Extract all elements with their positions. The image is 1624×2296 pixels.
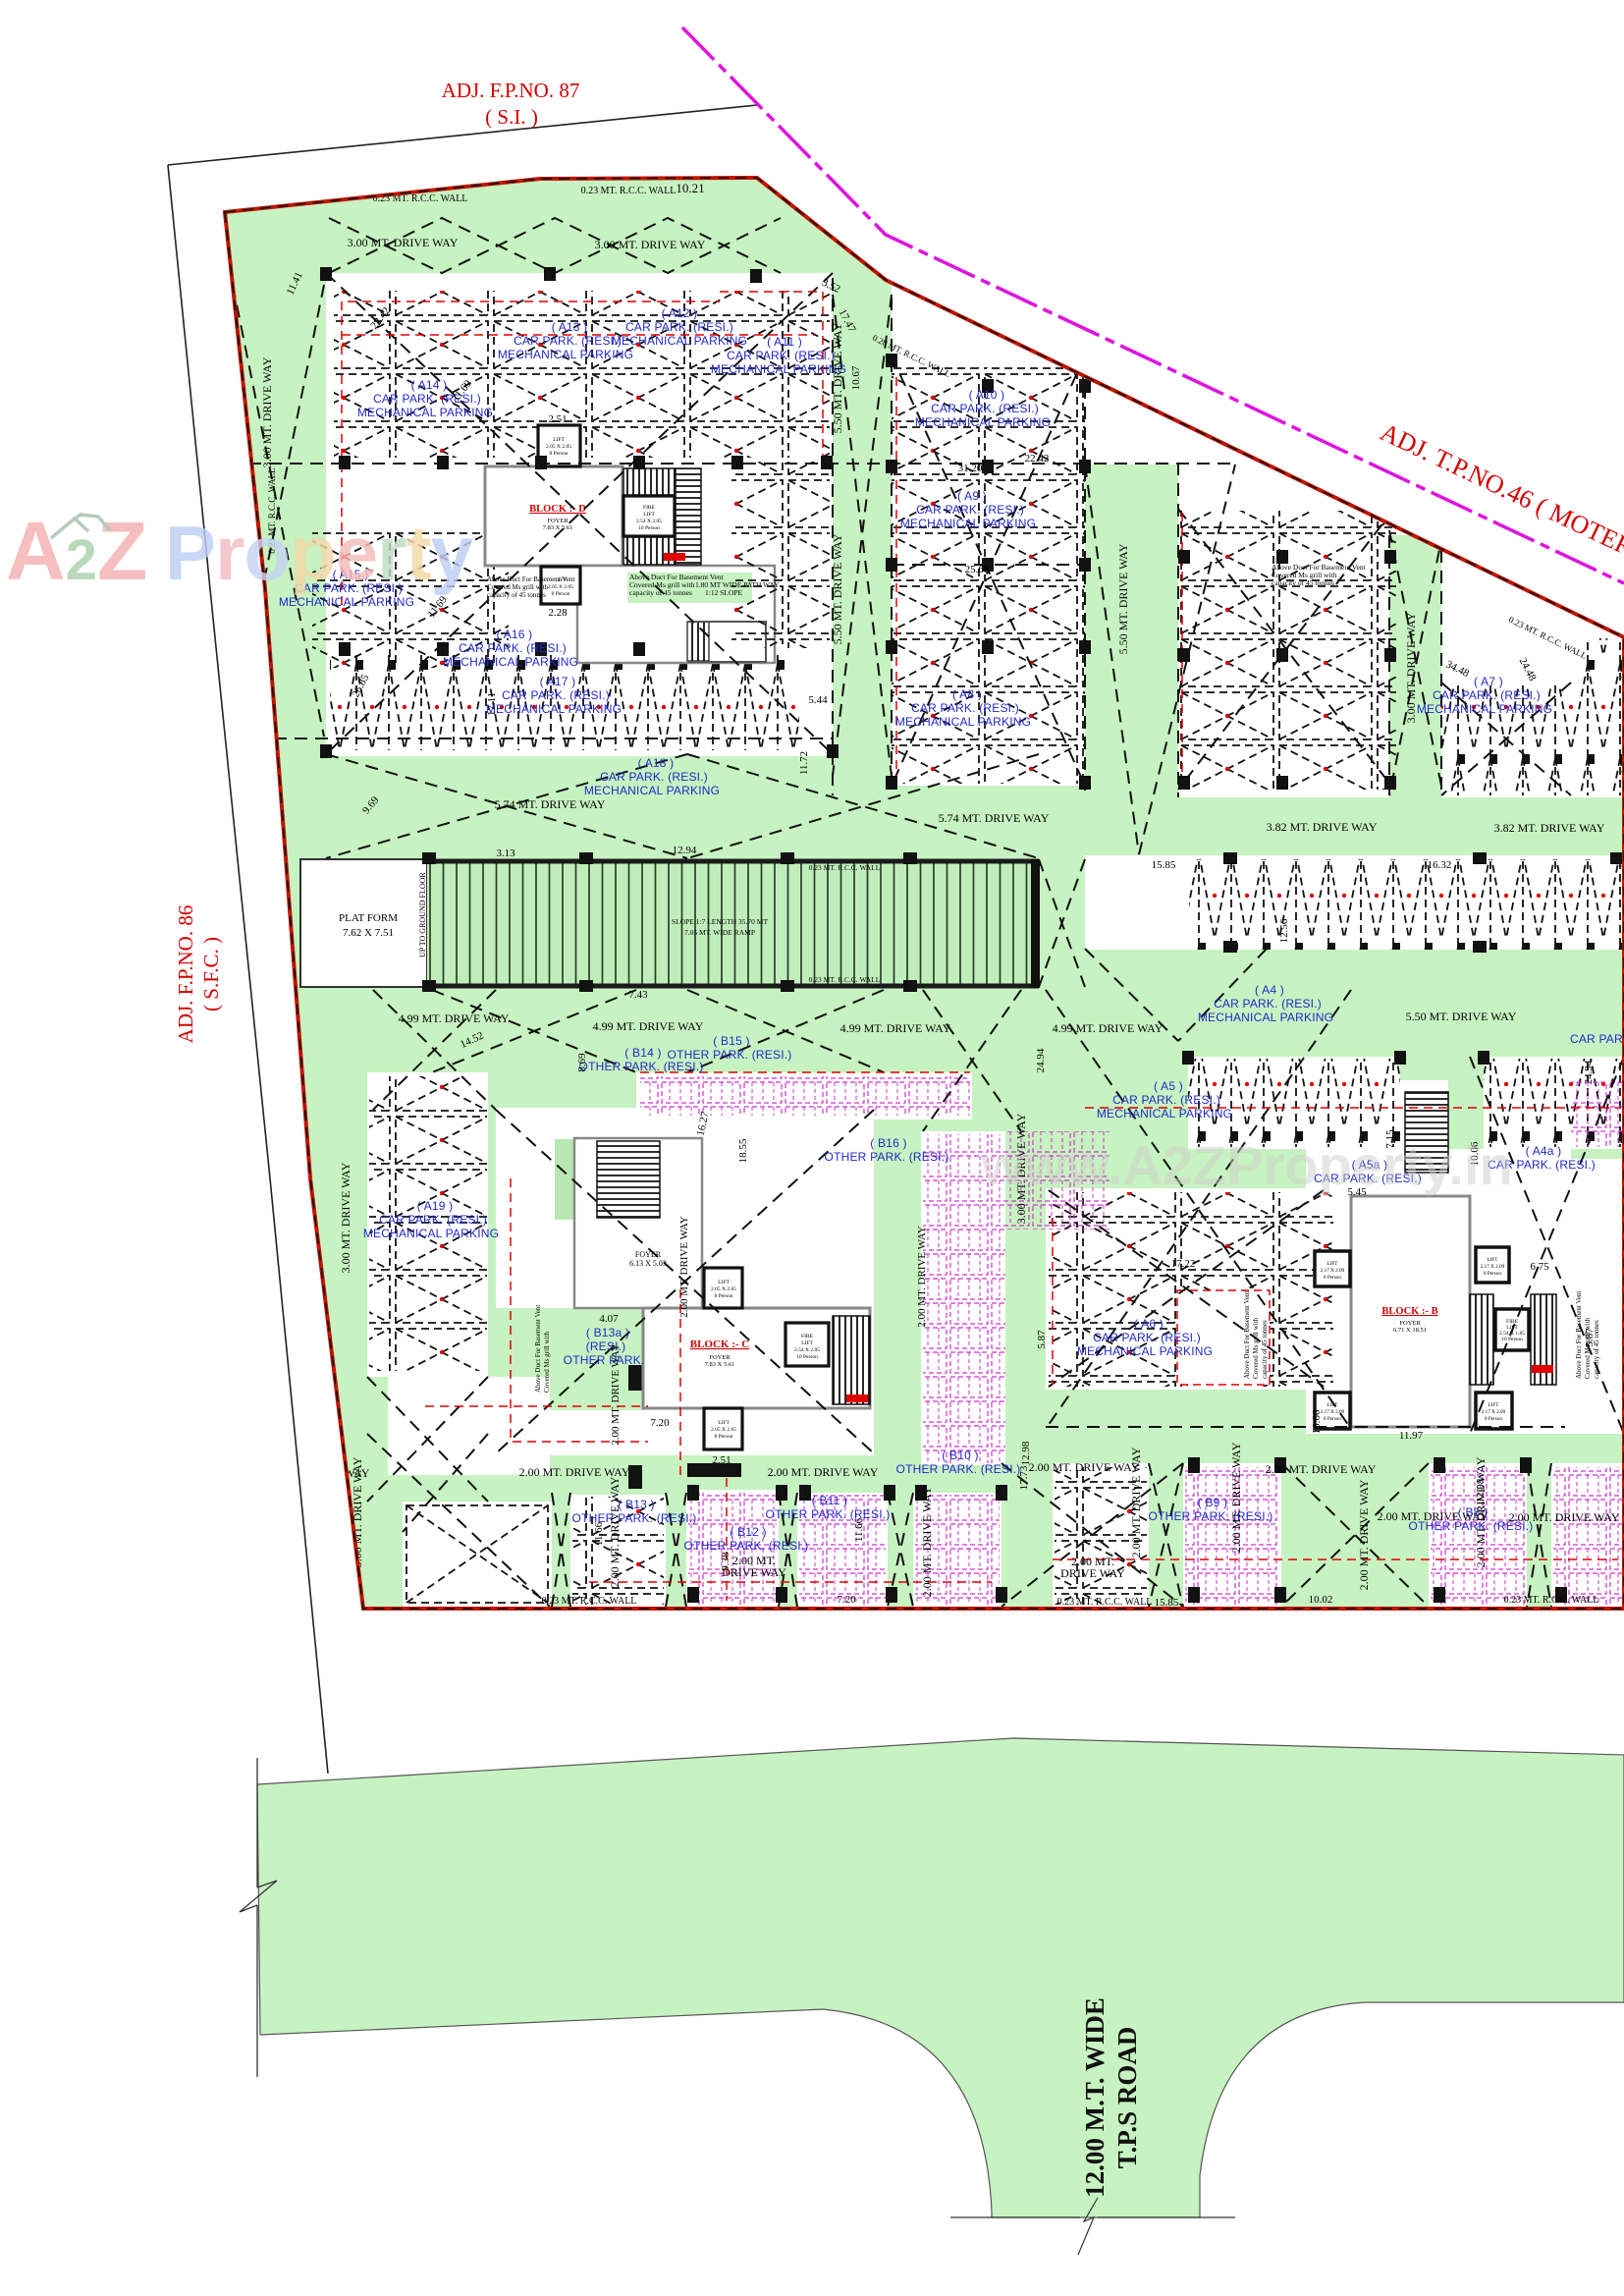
svg-text:8 Person: 8 Person (549, 451, 568, 457)
svg-text:7.20: 7.20 (650, 1417, 670, 1429)
svg-text:OTHER PARK. (RESI.): OTHER PARK. (RESI.) (572, 1511, 697, 1525)
svg-text:5.87: 5.87 (1584, 1328, 1596, 1347)
svg-text:( S.I. ): ( S.I. ) (485, 105, 538, 129)
svg-text:6.75: 6.75 (1530, 1261, 1549, 1273)
svg-text:( A8 ): ( A8 ) (952, 687, 982, 701)
svg-text:CAR PARK. (RESI.): CAR PARK. (RESI.) (1433, 688, 1541, 702)
svg-text:DRIVE WAY: DRIVE WAY (1060, 1566, 1125, 1580)
svg-text:SLOPE 1:7 LENGTH 35.70 MT: SLOPE 1:7 LENGTH 35.70 MT (672, 917, 769, 926)
svg-text:OTHER PARK. (RESI.): OTHER PARK. (RESI.) (684, 1539, 809, 1553)
svg-text:( A12 ): ( A12 ) (662, 306, 698, 320)
svg-text:CAR PARK. (RESI.): CAR PARK. (RESI.) (1093, 1331, 1201, 1344)
svg-text:8 Person: 8 Person (1324, 1416, 1341, 1422)
svg-text:DRIVE WAY: DRIVE WAY (722, 1565, 786, 1579)
svg-text:CAR PARK. (RESI.): CAR PARK. (RESI.) (916, 503, 1024, 517)
svg-text:( B10 ): ( B10 ) (942, 1449, 978, 1462)
svg-text:CAR PARK. (RESI.): CAR PARK. (RESI.) (502, 688, 610, 702)
svg-text:0.23 MT. R.C.C. WALL: 0.23 MT. R.C.C. WALL (1504, 1595, 1599, 1606)
svg-text:( B12 ): ( B12 ) (730, 1525, 766, 1539)
svg-text:8 Person: 8 Person (1484, 1271, 1501, 1277)
svg-text:capacity of 45 tonnes: capacity of 45 tonnes (1272, 578, 1334, 587)
svg-text:Property: Property (165, 510, 472, 596)
svg-text:CAR PARK. (RESI.): CAR PARK. (RESI.) (727, 349, 835, 362)
svg-text:12.94: 12.94 (673, 845, 697, 856)
svg-text:LIFT: LIFT (718, 1420, 730, 1426)
svg-text:3.00 MT. DRIVE WAY: 3.00 MT. DRIVE WAY (260, 356, 274, 467)
svg-text:MECHANICAL PARKING: MECHANICAL PARKING (1097, 1107, 1232, 1121)
svg-text:LIFT: LIFT (1327, 1261, 1339, 1267)
svg-text:BLOCK :- D: BLOCK :- D (529, 504, 586, 515)
svg-text:24.94: 24.94 (1035, 1048, 1047, 1072)
svg-text:FOYER: FOYER (547, 518, 568, 524)
svg-text:2.51: 2.51 (712, 1454, 731, 1466)
svg-text:CAR PARK. (RESI.): CAR PARK. (RESI.) (600, 770, 708, 784)
svg-text:( A17 ): ( A17 ) (540, 675, 576, 688)
svg-text:( A10 ): ( A10 ) (969, 388, 1005, 402)
svg-text:Covered Ms grill with: Covered Ms grill with (1584, 1317, 1592, 1379)
svg-text:2.54 X 2.05: 2.54 X 2.05 (636, 519, 662, 524)
svg-text:3.13: 3.13 (496, 847, 515, 859)
svg-text:2.00 MT. DRIVE WAY: 2.00 MT. DRIVE WAY (608, 1476, 622, 1587)
svg-text:Above Duct For Basement Vent: Above Duct For Basement Vent (534, 1305, 542, 1393)
svg-text:( A16 ): ( A16 ) (497, 628, 533, 641)
svg-text:FOYER: FOYER (1399, 1320, 1421, 1327)
svg-text:OTHER PARK. (RESI.): OTHER PARK. (RESI.) (825, 1150, 949, 1164)
svg-text:MECHANICAL PARKING: MECHANICAL PARKING (1417, 702, 1552, 716)
svg-text:31.20: 31.20 (958, 463, 983, 474)
svg-text:7.20: 7.20 (837, 1594, 856, 1606)
svg-text:OTHER PARK.: OTHER PARK. (564, 1353, 645, 1367)
svg-text:( A4 ): ( A4 ) (1255, 983, 1284, 997)
svg-text:2.00 MT. DRIVE WAY: 2.00 MT. DRIVE WAY (1474, 1456, 1488, 1567)
svg-text:MECHANICAL PARKING: MECHANICAL PARKING (1077, 1344, 1213, 1358)
svg-text:MECHANICAL PARKING: MECHANICAL PARKING (584, 784, 720, 797)
svg-text:2.05 X 2.05: 2.05 X 2.05 (548, 584, 573, 590)
svg-text:Covered Ms grill with: Covered Ms grill with (487, 583, 549, 591)
svg-text:4.07: 4.07 (599, 1313, 619, 1325)
svg-text:LIFT: LIFT (1489, 1402, 1500, 1408)
svg-text:5.50 MT. DRIVE WAY: 5.50 MT. DRIVE WAY (1116, 543, 1130, 654)
svg-text:BLOCK :- B: BLOCK :- B (1381, 1306, 1437, 1317)
svg-text:MECHANICAL PARKING: MECHANICAL PARKING (486, 702, 622, 716)
svg-text:3.00 MT. DRIVE WAY: 3.00 MT. DRIVE WAY (348, 236, 459, 249)
svg-text:6.71 X 18.51: 6.71 X 18.51 (1393, 1327, 1427, 1334)
svg-text:2.28: 2.28 (548, 607, 568, 619)
svg-text:10 Person: 10 Person (796, 1354, 818, 1360)
svg-text:LIFT: LIFT (643, 512, 655, 518)
svg-text:FIRE: FIRE (801, 1334, 814, 1339)
svg-text:( B11 ): ( B11 ) (812, 1494, 848, 1507)
svg-text:MECHANICAL PARKING: MECHANICAL PARKING (357, 406, 493, 419)
svg-text:LIFT: LIFT (553, 437, 565, 443)
svg-text:2.05 X 2.05: 2.05 X 2.05 (711, 1427, 736, 1433)
svg-text:( A9 ): ( A9 ) (957, 489, 987, 503)
svg-text:4.99 MT. DRIVE WAY: 4.99 MT. DRIVE WAY (399, 1011, 510, 1025)
svg-text:0.23 MT. R.C.C. WALL: 0.23 MT. R.C.C. WALL (809, 975, 881, 984)
svg-text:MECHANICAL PARKING: MECHANICAL PARKING (498, 348, 633, 361)
svg-text:MECHANICAL PARKING: MECHANICAL PARKING (1198, 1011, 1333, 1024)
svg-text:2.00 MT. DRIVE WAY: 2.00 MT. DRIVE WAY (1509, 1510, 1620, 1524)
svg-text:2.00 MT. DRIVE WAY: 2.00 MT. DRIVE WAY (920, 1486, 934, 1597)
svg-text:4.99 MT. DRIVE WAY: 4.99 MT. DRIVE WAY (1053, 1021, 1164, 1035)
svg-text:10 Person: 10 Person (638, 525, 660, 531)
svg-text:LIFT: LIFT (1488, 1257, 1499, 1263)
svg-text:MECHANICAL PARKING: MECHANICAL PARKING (279, 595, 414, 609)
svg-text:Covered Ms grill with: Covered Ms grill with (1252, 1317, 1260, 1379)
svg-text:8 Person: 8 Person (551, 591, 569, 597)
svg-text:5.50 MT. DRIVE WAY: 5.50 MT. DRIVE WAY (831, 322, 844, 433)
svg-text:( B13 ): ( B13 ) (618, 1498, 654, 1511)
svg-text:CAR PARK. (RESI.): CAR PARK. (RESI.) (911, 701, 1019, 715)
svg-text:CAR PARK. (RESI.): CAR PARK. (RESI.) (1214, 997, 1322, 1011)
svg-text:5.74 MT. DRIVE WAY: 5.74 MT. DRIVE WAY (939, 811, 1050, 825)
svg-text:5.44: 5.44 (808, 694, 828, 706)
svg-text:( A6 ): ( A6 ) (1134, 1317, 1164, 1331)
svg-text:LIFT: LIFT (801, 1340, 813, 1346)
svg-text:T.P.S ROAD: T.P.S ROAD (1112, 2027, 1142, 2169)
svg-text:2.00 MT. DRIVE WAY: 2.00 MT. DRIVE WAY (678, 1216, 690, 1317)
svg-text:MECHANICAL PARKING: MECHANICAL PARKING (900, 517, 1036, 530)
svg-text:10.02: 10.02 (1309, 1594, 1333, 1606)
svg-text:2.17 X 2.09: 2.17 X 2.09 (1482, 1409, 1506, 1415)
svg-text:3.82 MT. DRIVE WAY: 3.82 MT. DRIVE WAY (1494, 821, 1605, 835)
svg-text:2.05 X 2.05: 2.05 X 2.05 (711, 1286, 736, 1292)
svg-text:FOYER: FOYER (635, 1250, 662, 1259)
svg-text:3.00 MT. DRIVE WAY: 3.00 MT. DRIVE WAY (1404, 612, 1418, 723)
svg-text:12.98: 12.98 (1020, 1441, 1032, 1465)
svg-text:0.23 MT. R.C.C. WALL: 0.23 MT. R.C.C. WALL (542, 1596, 637, 1607)
svg-text:15.85: 15.85 (1152, 859, 1176, 871)
svg-text:OTHER PARK. (RESI.): OTHER PARK. (RESI.) (1149, 1509, 1273, 1523)
svg-text:8 Person: 8 Person (1485, 1416, 1502, 1422)
svg-text:8 Person: 8 Person (714, 1434, 732, 1440)
svg-text:( A5 ): ( A5 ) (1154, 1079, 1183, 1093)
svg-text:CAR PARK. (RESI.): CAR PARK. (RESI.) (931, 402, 1039, 415)
svg-text:10 Person: 10 Person (1501, 1337, 1523, 1342)
svg-text:25.68: 25.68 (965, 564, 990, 575)
svg-text:3.00 MT. DRIVE WAY: 3.00 MT. DRIVE WAY (339, 1162, 352, 1273)
svg-text:17.22: 17.22 (1171, 1258, 1196, 1270)
svg-text:2.00 MT. DRIVE WAY: 2.00 MT. DRIVE WAY (916, 1226, 928, 1327)
svg-text:22.42: 22.42 (1025, 453, 1050, 465)
svg-text:24.94: 24.94 (1583, 1060, 1595, 1084)
svg-text:0.23 MT. R.C.C. WALL: 0.23 MT. R.C.C. WALL (581, 186, 677, 196)
svg-text:17.73: 17.73 (1018, 1465, 1030, 1490)
svg-text:( A13 ): ( A13 ) (552, 320, 588, 334)
svg-text:10.66: 10.66 (1311, 1409, 1323, 1434)
svg-text:0.23 MT. R.C.C. WALL: 0.23 MT. R.C.C. WALL (809, 863, 881, 872)
svg-text:PLAT FORM: PLAT FORM (339, 912, 398, 924)
svg-text:MECHANICAL PARKING: MECHANICAL PARKING (443, 655, 578, 669)
svg-text:7.43: 7.43 (628, 989, 648, 1001)
svg-text:MECHANICAL PARKING: MECHANICAL PARKING (915, 415, 1051, 429)
svg-text:OTHER PARK. (RESI.): OTHER PARK. (RESI.) (579, 1060, 704, 1073)
svg-text:www.A2ZProperty.in: www.A2ZProperty.in (980, 1134, 1512, 1196)
svg-text:3.00 MT. DRIVE WAY: 3.00 MT. DRIVE WAY (595, 238, 706, 251)
svg-text:CAR PARK. (RESI.): CAR PARK. (RESI.) (625, 320, 733, 334)
svg-text:11.97: 11.97 (1399, 1430, 1424, 1442)
svg-text:10.21: 10.21 (676, 181, 704, 195)
svg-text:17.11: 17.11 (486, 692, 498, 716)
svg-text:2.00 MT. DRIVE WAY: 2.00 MT. DRIVE WAY (1378, 1509, 1489, 1523)
svg-text:( B14 ): ( B14 ) (624, 1046, 661, 1060)
svg-text:2.05 X 2.05: 2.05 X 2.05 (546, 444, 571, 450)
svg-text:FOYER: FOYER (709, 1354, 731, 1361)
svg-text:UP TO GROUND FLOOR: UP TO GROUND FLOOR (418, 872, 427, 957)
svg-text:MECHANICAL PARKING: MECHANICAL PARKING (363, 1227, 499, 1240)
svg-text:( B13a ): ( B13a ) (586, 1326, 629, 1339)
svg-text:11.66: 11.66 (593, 1521, 605, 1546)
svg-text:8.69: 8.69 (576, 1053, 588, 1072)
svg-text:( A11 ): ( A11 ) (767, 335, 802, 349)
svg-text:MECHANICAL PARKING: MECHANICAL PARKING (612, 334, 747, 348)
svg-text:11.72: 11.72 (798, 751, 810, 775)
svg-text:ADJ. F.P.NO. 86: ADJ. F.P.NO. 86 (174, 905, 197, 1044)
svg-text:3.82 MT. DRIVE WAY: 3.82 MT. DRIVE WAY (1267, 820, 1378, 834)
svg-text:Above Duct For Basement Vent: Above Duct For Basement Vent (1575, 1291, 1583, 1379)
svg-text:0.23 MT. R.C.C. WALL: 0.23 MT. R.C.C. WALL (1057, 1597, 1153, 1608)
svg-text:( A19 ): ( A19 ) (417, 1199, 454, 1213)
svg-text:( B16 ): ( B16 ) (870, 1136, 906, 1150)
svg-text:CAR PARK. (RESI.): CAR PARK. (RESI.) (514, 334, 622, 348)
svg-text:( B9 ): ( B9 ) (1198, 1496, 1228, 1509)
svg-text:8 Person: 8 Person (1324, 1275, 1341, 1281)
svg-text:4.99 MT. DRIVE WAY: 4.99 MT. DRIVE WAY (593, 1019, 704, 1033)
svg-text:LIFT: LIFT (718, 1280, 730, 1285)
svg-text:Above Duct For Basement Vent: Above Duct For Basement Vent (487, 575, 574, 583)
svg-text:( B15 ): ( B15 ) (713, 1034, 749, 1048)
svg-text:11.66: 11.66 (853, 1517, 865, 1542)
svg-text:8 Person: 8 Person (714, 1293, 732, 1299)
svg-text:2.00 MT. DRIVE WAY: 2.00 MT. DRIVE WAY (1266, 1462, 1377, 1476)
svg-text:( A14 ): ( A14 ) (411, 378, 448, 392)
svg-text:7.05 MT. WIDE RAMP: 7.05 MT. WIDE RAMP (684, 928, 755, 937)
svg-text:5.50 MT. DRIVE WAY: 5.50 MT. DRIVE WAY (1406, 1010, 1517, 1023)
svg-text:7.83 X 5.61: 7.83 X 5.61 (543, 524, 573, 531)
svg-text:2.00 MT. DRIVE WAY: 2.00 MT. DRIVE WAY (768, 1465, 879, 1479)
svg-text:CAR PARK. (RESI.): CAR PARK. (RESI.) (1112, 1093, 1220, 1107)
svg-text:7.83 X 5.61: 7.83 X 5.61 (705, 1361, 735, 1368)
svg-text:OTHER PARK. (RESI.): OTHER PARK. (RESI.) (668, 1048, 792, 1062)
svg-text:12.00 M.T. WIDE: 12.00 M.T. WIDE (1080, 1997, 1110, 2198)
svg-text:7.62 X 7.51: 7.62 X 7.51 (343, 927, 394, 939)
svg-text:OTHER PARK. (RESI.): OTHER PARK. (RESI.) (766, 1507, 891, 1521)
svg-text:16.32: 16.32 (1428, 859, 1452, 871)
svg-text:5.50 MT. DRIVE WAY: 5.50 MT. DRIVE WAY (831, 533, 844, 644)
svg-text:2.00 MT. DRIVE WAY: 2.00 MT. DRIVE WAY (1229, 1442, 1243, 1553)
svg-text:2.17 X 2.09: 2.17 X 2.09 (1321, 1268, 1345, 1274)
svg-text:( A7 ): ( A7 ) (1474, 675, 1503, 688)
svg-text:capacity of 45 tonnes: capacity of 45 tonnes (629, 588, 692, 597)
svg-text:5.74 MT. DRIVE WAY: 5.74 MT. DRIVE WAY (495, 797, 606, 811)
svg-text:MECHANICAL PARKING: MECHANICAL PARKING (895, 715, 1031, 729)
svg-text:6.13 X 5.03: 6.13 X 5.03 (629, 1259, 667, 1268)
svg-text:( A4a ): ( A4a ) (1526, 1144, 1562, 1158)
svg-text:CAR PARK. (RESI.): CAR PARK. (RESI.) (379, 1213, 487, 1227)
svg-text:2.54 X 2.05: 2.54 X 2.05 (794, 1347, 820, 1353)
svg-text:12.56: 12.56 (1278, 918, 1290, 943)
svg-text:BLOCK :- C: BLOCK :- C (690, 1339, 750, 1350)
svg-text:18.55: 18.55 (737, 1138, 749, 1163)
svg-text:2.00 MT. DRIVE WAY: 2.00 MT. DRIVE WAY (610, 1343, 622, 1445)
svg-text:2.00 MT. DRIVE WAY: 2.00 MT. DRIVE WAY (1129, 1447, 1143, 1558)
svg-text:2.00 MT. DRIVE WAY: 2.00 MT. DRIVE WAY (1357, 1479, 1371, 1590)
svg-text:capacity of 45 tonnes: capacity of 45 tonnes (1261, 1320, 1269, 1379)
svg-text:FIRE: FIRE (643, 505, 656, 511)
svg-text:10.67: 10.67 (850, 365, 862, 390)
svg-text:2.51: 2.51 (548, 413, 567, 425)
svg-text:CAR PARK. (RESI.): CAR PARK. (RESI.) (459, 641, 567, 655)
svg-text:ADJ. F.P.NO. 87: ADJ. F.P.NO. 87 (442, 79, 580, 102)
svg-text:2.17 X 2.09: 2.17 X 2.09 (1481, 1264, 1505, 1270)
svg-text:OTHER PARK. (RESI.): OTHER PARK. (RESI.) (896, 1462, 1021, 1476)
svg-text:( S.F.C. ): ( S.F.C. ) (199, 937, 223, 1011)
svg-text:12.98: 12.98 (1475, 1478, 1487, 1503)
svg-text:2.00 MT. DRIVE WAY: 2.00 MT. DRIVE WAY (1029, 1460, 1140, 1474)
svg-text:Covered Ms grill with: Covered Ms grill with (543, 1331, 551, 1393)
svg-text:4.99 MT. DRIVE WAY: 4.99 MT. DRIVE WAY (840, 1021, 951, 1035)
svg-text:( A18 ): ( A18 ) (638, 756, 675, 770)
svg-text:9.38: 9.38 (720, 1552, 731, 1571)
svg-text:MECHANICAL PARKING: MECHANICAL PARKING (711, 362, 846, 376)
svg-text:CAR PARK: CAR PARK (1570, 1032, 1624, 1046)
svg-text:5.87: 5.87 (1036, 1330, 1048, 1349)
